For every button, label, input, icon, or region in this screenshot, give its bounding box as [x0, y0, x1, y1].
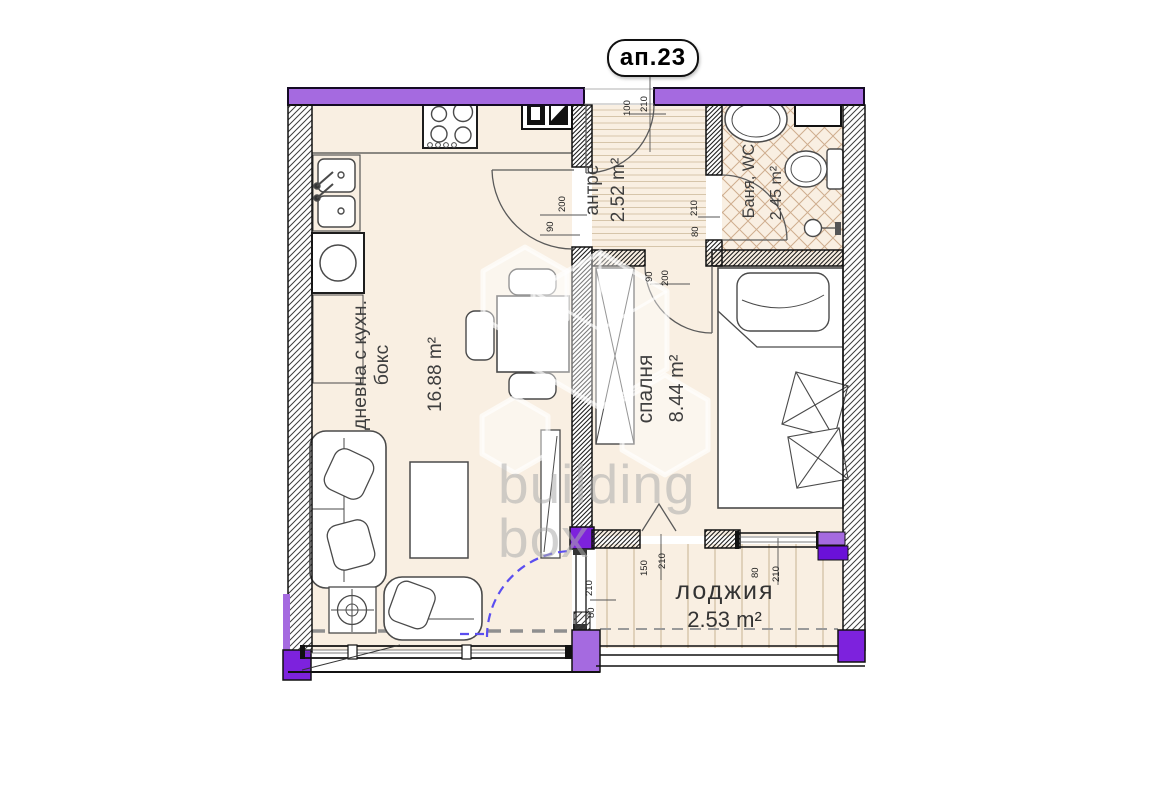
dim-living-door-height: 200: [558, 196, 568, 212]
dim-living-door-width: 90: [546, 221, 556, 232]
dim-bath-door-height: 210: [690, 200, 700, 216]
dim-bedroom-door-height: 200: [661, 270, 671, 286]
left-wall: [288, 105, 312, 652]
apartment-badge: ап.23: [607, 39, 699, 77]
living-room-area: 16.88 m²: [425, 317, 447, 432]
dim-bedroom-window-a: 80: [751, 567, 761, 578]
dim-loggia-door-height: 210: [658, 553, 668, 569]
bedroom-window: [735, 531, 820, 549]
bath-label: Баня, WC: [740, 112, 762, 250]
coffee-table: [410, 462, 468, 558]
living-name-line1: дневна с кухн.: [349, 260, 371, 470]
dim-bedroom-door-width: 90: [645, 271, 655, 282]
side-table-lamp: [329, 587, 376, 633]
bedroom-label: спалня: [634, 328, 660, 450]
loggia-purple-block: [838, 630, 865, 662]
floor-plan-drawing: [0, 0, 1170, 785]
dim-entrance-width: 100: [623, 100, 633, 116]
top-wall-right: [654, 88, 864, 105]
dim-entrance-height: 210: [640, 96, 650, 112]
right-wall: [843, 105, 865, 650]
dim-bath-door-width: 80: [691, 226, 701, 237]
loggia-area: 2.53 m²: [672, 607, 777, 631]
bath-area: 2.45 m²: [768, 142, 788, 244]
dim-bedroom-window-b: 210: [772, 566, 782, 582]
loggia-railing: [596, 646, 865, 666]
top-wall-left: [288, 88, 584, 105]
dim-living-window-b: 80: [587, 607, 597, 618]
living-room-label: дневна с кухн. бокс: [349, 260, 395, 470]
window-pier-purple: [572, 630, 600, 672]
dim-living-window-a: 210: [585, 580, 595, 596]
living-name-line2: бокс: [371, 260, 393, 470]
hall-label: антре: [582, 136, 606, 244]
toilet: [785, 149, 843, 189]
armchair: [384, 577, 482, 640]
left-wall-purple-strip: [283, 594, 290, 654]
bottom-left-purple-block: [283, 650, 311, 680]
floor-plan-page: ап.23: [0, 0, 1170, 785]
hall-area: 2.52 m²: [608, 134, 632, 246]
bedroom-area: 8.44 m²: [666, 335, 688, 442]
watermark-line2: box: [498, 506, 590, 570]
dim-loggia-door-width: 150: [640, 560, 650, 576]
